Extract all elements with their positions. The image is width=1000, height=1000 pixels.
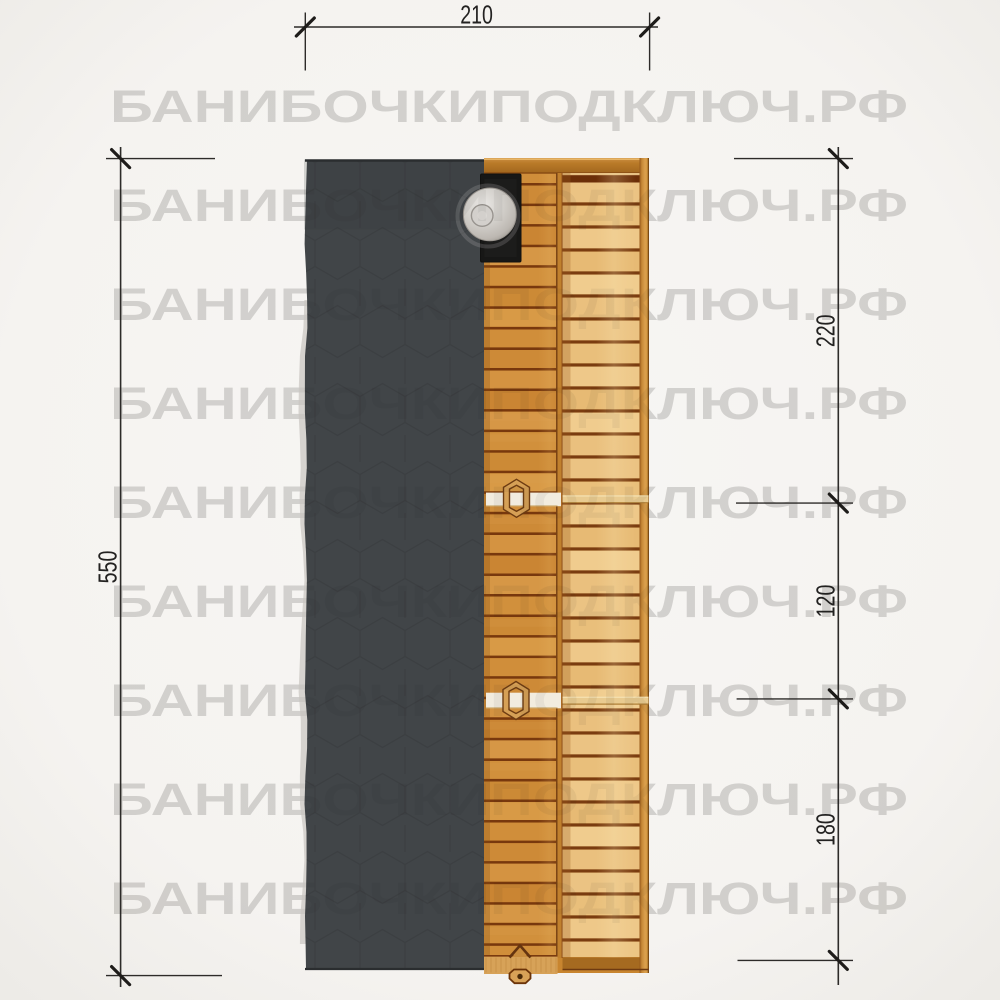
svg-text:БАНИБОЧКИПОДКЛЮЧ.РФ: БАНИБОЧКИПОДКЛЮЧ.РФ [110, 280, 908, 330]
svg-text:БАНИБОЧКИПОДКЛЮЧ.РФ: БАНИБОЧКИПОДКЛЮЧ.РФ [110, 181, 908, 231]
svg-text:210: 210 [460, 0, 493, 29]
svg-text:БАНИБОЧКИПОДКЛЮЧ.РФ: БАНИБОЧКИПОДКЛЮЧ.РФ [110, 577, 908, 627]
svg-text:БАНИБОЧКИПОДКЛЮЧ.РФ: БАНИБОЧКИПОДКЛЮЧ.РФ [110, 775, 908, 825]
svg-text:БАНИБОЧКИПОДКЛЮЧ.РФ: БАНИБОЧКИПОДКЛЮЧ.РФ [110, 874, 908, 924]
svg-text:БАНИБОЧКИПОДКЛЮЧ.РФ: БАНИБОЧКИПОДКЛЮЧ.РФ [110, 379, 908, 429]
svg-text:БАНИБОЧКИПОДКЛЮЧ.РФ: БАНИБОЧКИПОДКЛЮЧ.РФ [110, 478, 908, 528]
svg-text:БАНИБОЧКИПОДКЛЮЧ.РФ: БАНИБОЧКИПОДКЛЮЧ.РФ [110, 82, 908, 132]
svg-text:БАНИБОЧКИПОДКЛЮЧ.РФ: БАНИБОЧКИПОДКЛЮЧ.РФ [110, 676, 908, 726]
